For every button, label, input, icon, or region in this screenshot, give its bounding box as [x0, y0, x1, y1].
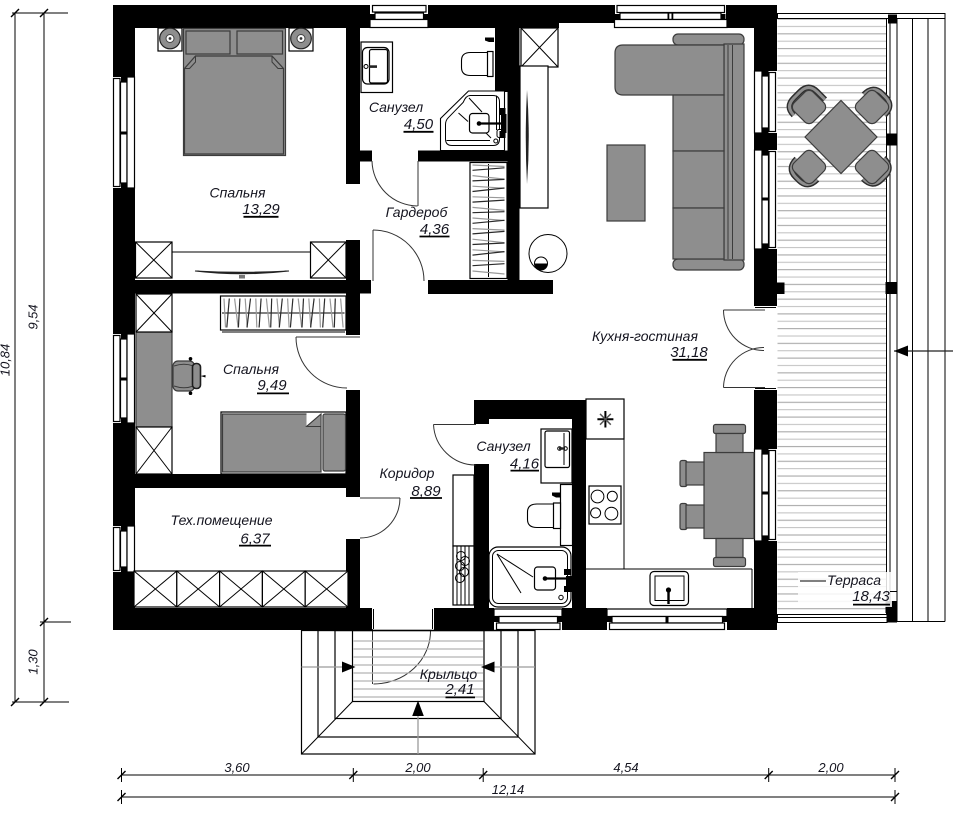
svg-text:13,29: 13,29: [242, 201, 280, 218]
svg-text:Гардероб: Гардероб: [386, 204, 449, 220]
svg-text:18,43: 18,43: [852, 588, 890, 605]
svg-text:4,36: 4,36: [420, 221, 450, 238]
svg-text:Санузел: Санузел: [369, 99, 423, 115]
svg-text:Спальня: Спальня: [223, 361, 279, 377]
svg-text:2,00: 2,00: [817, 760, 844, 775]
svg-text:Крыльцо: Крыльцо: [420, 666, 478, 682]
svg-text:Терраса: Терраса: [827, 572, 881, 588]
svg-text:12,14: 12,14: [492, 782, 525, 797]
svg-text:9,54: 9,54: [26, 304, 41, 329]
svg-text:Тех.помещение: Тех.помещение: [171, 512, 273, 528]
svg-text:4,50: 4,50: [404, 116, 434, 133]
svg-text:4,54: 4,54: [613, 760, 638, 775]
svg-text:9,49: 9,49: [257, 377, 287, 394]
svg-text:1,30: 1,30: [26, 649, 41, 675]
svg-text:31,18: 31,18: [670, 344, 708, 361]
svg-text:2,00: 2,00: [404, 760, 431, 775]
svg-text:10,84: 10,84: [0, 344, 13, 377]
svg-text:Санузел: Санузел: [476, 438, 530, 454]
svg-text:Кухня-гостиная: Кухня-гостиная: [592, 328, 698, 344]
svg-text:Спальня: Спальня: [210, 185, 266, 201]
svg-text:Коридор: Коридор: [380, 465, 435, 481]
svg-text:2,41: 2,41: [444, 681, 474, 698]
svg-text:3,60: 3,60: [224, 760, 250, 775]
